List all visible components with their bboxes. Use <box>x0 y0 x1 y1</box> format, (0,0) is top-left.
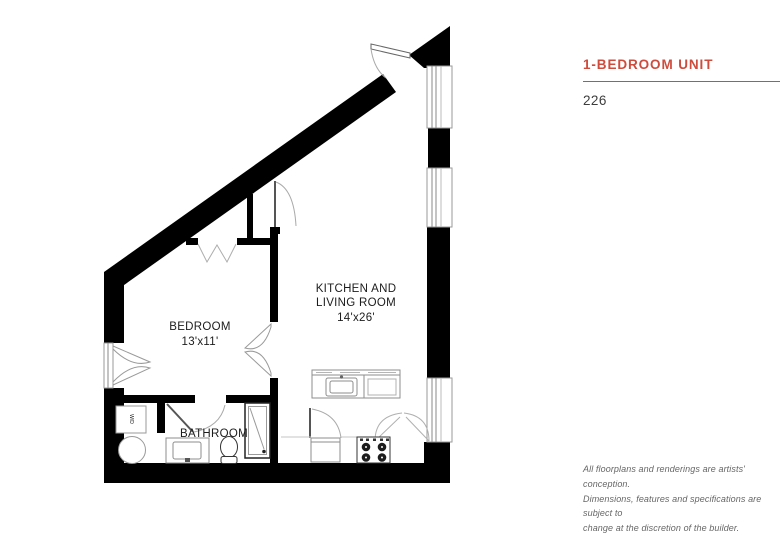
kitchen-fixtures <box>311 370 400 463</box>
wall-bedroom-top-left <box>186 238 198 245</box>
window-right-2 <box>427 168 452 227</box>
unit-type-title: 1-BEDROOM UNIT <box>583 57 780 82</box>
window-bedroom-left <box>104 343 113 388</box>
wall-bedroom-right-upper <box>270 233 278 322</box>
wall-wd-divider <box>157 403 165 433</box>
wall-left-upper <box>104 272 124 343</box>
disclaimer-line: change at the discretion of the builder. <box>583 521 780 536</box>
toilet <box>221 437 238 464</box>
wall-stub-hall-door <box>270 227 280 234</box>
wall-bathroom-top-right <box>226 395 278 403</box>
kitchen-living-label-line2: LIVING ROOM <box>316 297 396 309</box>
entry-door <box>371 44 410 78</box>
disclaimer-text: All floorplans and renderings are artist… <box>583 462 780 536</box>
kitchen-sink <box>326 375 357 396</box>
stove <box>357 437 390 463</box>
casement-window-sashes <box>113 346 150 385</box>
bedroom-dims: 13'x11' <box>182 336 219 348</box>
window-right-1 <box>427 66 452 128</box>
disclaimer-line: All floorplans and renderings are artist… <box>583 462 780 492</box>
hall-closet-door <box>275 181 296 227</box>
bedroom-label: BEDROOM <box>169 321 231 333</box>
wall-right-seg1 <box>428 128 450 168</box>
kitchen-living-dims: 14'x26' <box>337 312 375 324</box>
water-heater <box>119 437 146 464</box>
washer-dryer-label: W/D <box>128 414 134 424</box>
wall-bottom <box>104 463 448 483</box>
wall-diagonal <box>104 74 396 290</box>
unit-number: 226 <box>583 93 780 108</box>
kitchen-living-label-line1: KITCHEN AND <box>316 283 397 295</box>
wall-right-seg3 <box>424 442 450 483</box>
wall-entry-closet <box>247 194 253 244</box>
bathroom-vanity-sink <box>166 438 209 463</box>
wall-bedroom-right-lower <box>270 378 278 465</box>
bedroom-double-doors <box>245 324 271 376</box>
wall-top-corner <box>409 26 450 68</box>
bathroom-label: BATHROOM <box>180 428 248 440</box>
wall-bathroom-top-left <box>124 395 195 403</box>
bedroom-closet-bifold-doors <box>198 244 236 262</box>
shower <box>245 403 270 458</box>
kitchen-door <box>310 408 341 438</box>
window-right-3 <box>427 378 452 442</box>
floorplan-page: BEDROOM 13'x11' KITCHEN AND LIVING ROOM … <box>0 0 780 517</box>
info-panel: 1-BEDROOM UNIT 226 <box>583 57 780 108</box>
dishwasher <box>311 438 340 462</box>
floorplan-drawing: BEDROOM 13'x11' KITCHEN AND LIVING ROOM … <box>0 0 565 517</box>
wall-right-seg2 <box>427 227 450 378</box>
